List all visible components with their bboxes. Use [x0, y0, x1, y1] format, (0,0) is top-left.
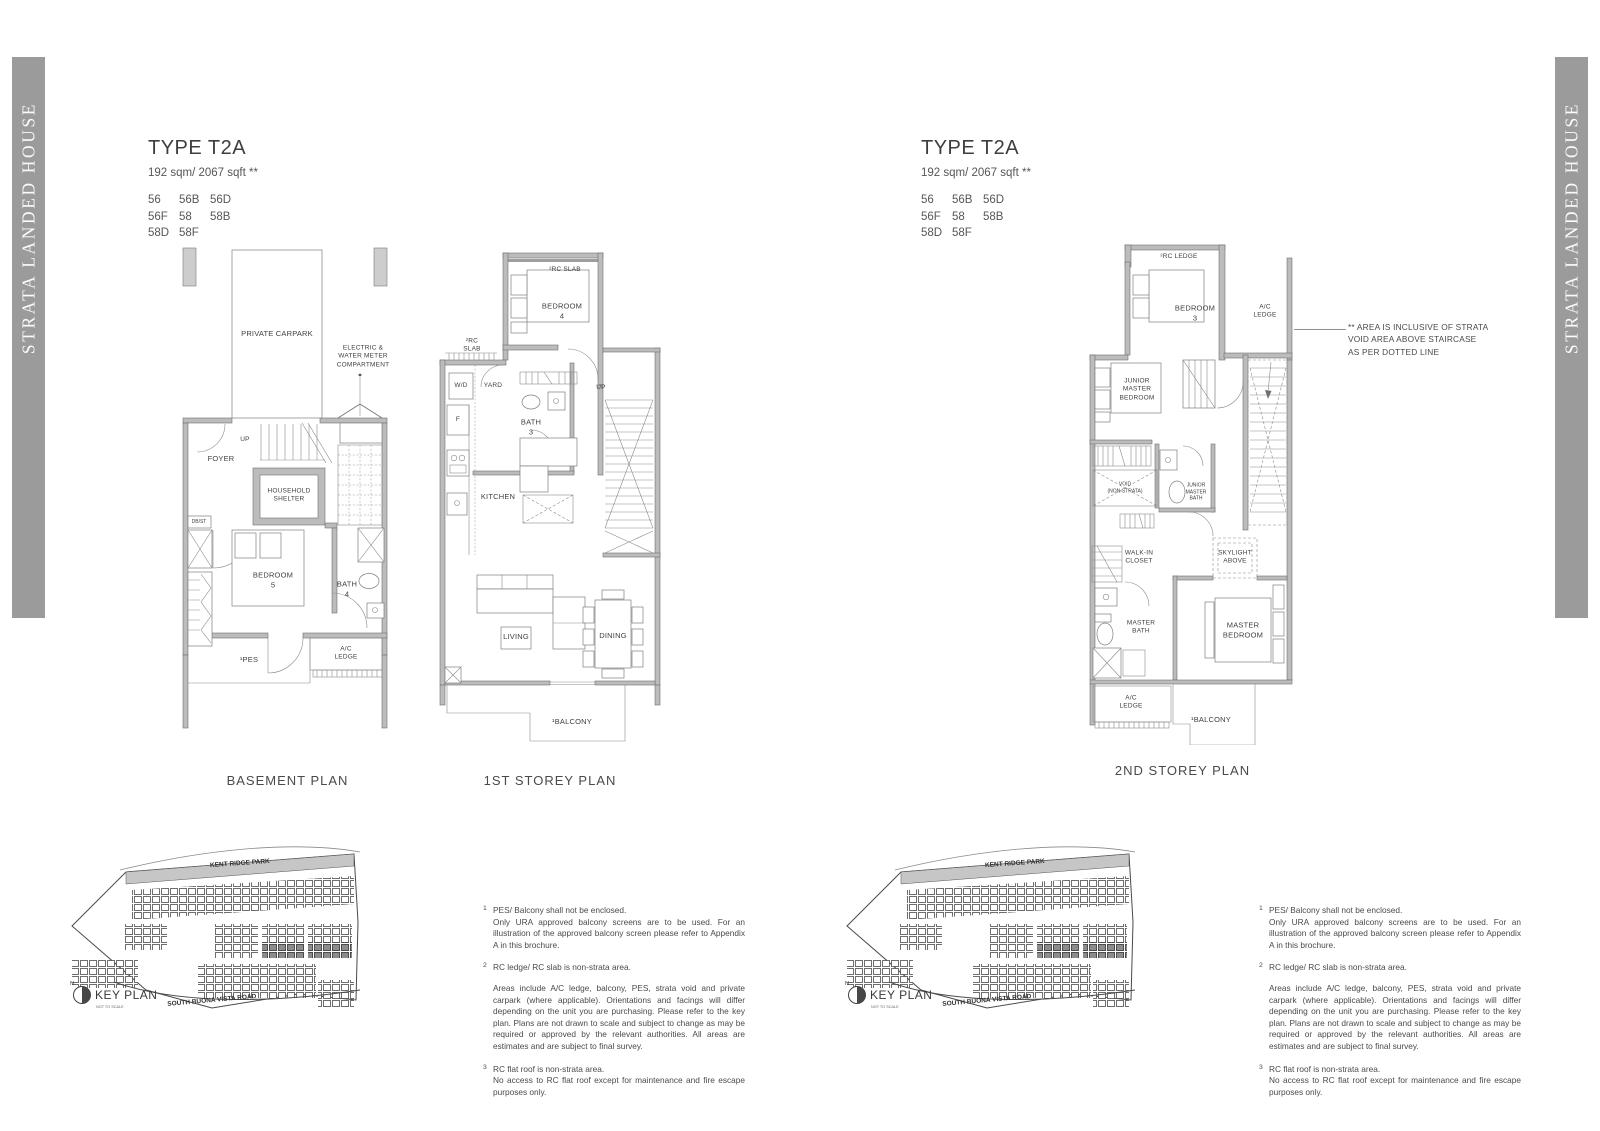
key-plan-title: KEY PLAN — [95, 988, 157, 1002]
unit-number: 56F — [148, 209, 179, 226]
highlighted-blocks — [1037, 942, 1079, 958]
unit-number: 56F — [921, 209, 952, 226]
first-storey-plan-caption: 1ST STOREY PLAN — [435, 773, 665, 788]
island-counter — [520, 438, 577, 466]
unit-number: 56D — [210, 192, 241, 209]
toilet — [359, 574, 379, 589]
room-label-household-shelter: HOUSEHOLD SHELTER — [268, 488, 311, 505]
footnote-3: 3 RC flat roof is non-strata area. No ac… — [1258, 1064, 1521, 1099]
footnote-number: 3 — [483, 1063, 487, 1073]
key-plan-title: KEY PLAN — [870, 988, 932, 1002]
label-skylight-above: SKYLIGHT ABOVE — [1218, 550, 1252, 567]
footnote-body: Only URA approved balcony screens are to… — [1269, 917, 1521, 952]
footnote-body: Only URA approved balcony screens are to… — [493, 917, 745, 952]
label-dbst: DB/ST — [192, 519, 207, 526]
unit-number: 58 — [179, 209, 210, 226]
unit-type-title: TYPE T2A — [921, 137, 1221, 160]
kitchen-sink — [447, 493, 467, 515]
unit-type-title: TYPE T2A — [148, 137, 448, 160]
left-sidebar-band: STRATA LANDED HOUSE — [12, 57, 45, 618]
label-fridge: F — [456, 416, 460, 424]
footnote-title: RC ledge/ RC slab is non-strata area. — [1269, 962, 1521, 974]
key-plan-map: KENT RIDGE PARK SOUTH BUONA VISTA ROAD N… — [62, 832, 462, 1017]
label-rc-slab-left: ²RC SLAB — [463, 338, 480, 355]
basement-floorplan: PRIVATE CARPARK ELECTRIC & WATER METER C… — [175, 240, 400, 740]
footnote-1: 1 PES/ Balcony shall not be enclosed. On… — [482, 905, 745, 951]
footnote-number: 2 — [1259, 961, 1263, 971]
key-plan-right: KENT RIDGE PARK SOUTH BUONA VISTA ROAD N… — [837, 832, 1237, 1017]
unit-number: 58B — [210, 209, 241, 226]
footnote-2: 2 RC ledge/ RC slab is non-strata area. … — [482, 962, 745, 1052]
meter-compartment — [338, 374, 382, 443]
sink — [1160, 450, 1177, 470]
hatched-void-grid — [338, 445, 382, 525]
unit-number: 58 — [952, 209, 983, 226]
room-label-ac-ledge: A/C LEDGE — [334, 646, 357, 663]
key-plan-scale-note: NOT TO SCALE — [96, 1005, 124, 1009]
first-storey-floorplan: ²RC SLAB BEDROOM 4 ²RC SLAB W/D YARD F B… — [435, 245, 665, 745]
second-storey-plan-caption: 2ND STOREY PLAN — [1065, 763, 1300, 778]
unit-number: 58B — [983, 209, 1014, 226]
footnote-number: 2 — [483, 961, 487, 971]
unit-area-label: 192 sqm/ 2067 sqft ** — [921, 167, 1221, 179]
room-label-master-bath: MASTER BATH — [1127, 620, 1155, 637]
footnote-title: PES/ Balcony shall not be enclosed. — [1269, 905, 1521, 917]
unit-number: 56D — [983, 192, 1014, 209]
footnote-title: RC flat roof is non-strata area. — [1269, 1064, 1521, 1076]
label-up: UP — [240, 436, 249, 444]
brochure-page: { "sidebar_title": "STRATA LANDED HOUSE"… — [0, 0, 1600, 1131]
room-label-junior-master-bath: JUNIOR MASTER BATH — [1186, 482, 1207, 502]
footnote-1: 1 PES/ Balcony shall not be enclosed. On… — [1258, 905, 1521, 951]
label-rc-slab-top: ²RC SLAB — [549, 266, 581, 274]
right-page-header: TYPE T2A 192 sqm/ 2067 sqft ** 56 56B 56… — [921, 137, 1221, 242]
toilet — [1097, 623, 1113, 645]
footnotes-left: 1 PES/ Balcony shall not be enclosed. On… — [482, 905, 745, 1110]
sink — [1095, 588, 1117, 606]
unit-number: 56B — [952, 192, 983, 209]
label-electric-water-meter: ELECTRIC & WATER METER COMPARTMENT — [337, 344, 390, 369]
room-label-bath3: BATH 3 — [521, 417, 541, 437]
right-sidebar-title: STRATA LANDED HOUSE — [1561, 102, 1582, 354]
toilet — [1169, 481, 1185, 503]
unit-number: 56 — [921, 192, 952, 209]
stairs-void — [1248, 360, 1287, 525]
unit-number: 56B — [179, 192, 210, 209]
junior-master-furniture — [1095, 360, 1243, 422]
room-label-bedroom3: BEDROOM 3 — [1175, 303, 1215, 323]
room-label-walk-in-closet: WALK-IN CLOSET — [1125, 550, 1153, 567]
left-sidebar-title: STRATA LANDED HOUSE — [18, 102, 39, 354]
closet-hatch — [1092, 514, 1154, 582]
key-plan-left: KENT RIDGE PARK SOUTH BUONA VISTA ROAD N… — [62, 832, 462, 1017]
footnote-title: RC ledge/ RC slab is non-strata area. — [493, 962, 745, 974]
key-plan-map: KENT RIDGE PARK SOUTH BUONA VISTA ROAD N… — [837, 832, 1237, 1017]
unit-number-list: 56 56B 56D 56F 58 58B 58D 58F — [921, 192, 1021, 242]
footnote-body: Areas include A/C ledge, balcony, PES, s… — [493, 983, 745, 1053]
right-sidebar-band: STRATA LANDED HOUSE — [1555, 57, 1588, 618]
strata-void-annotation: ** AREA IS INCLUSIVE OF STRATA VOID AREA… — [1348, 321, 1488, 358]
room-label-dining: DINING — [599, 631, 626, 641]
footnote-body: Areas include A/C ledge, balcony, PES, s… — [1269, 983, 1521, 1053]
toilet — [522, 395, 540, 409]
stairs — [598, 385, 653, 553]
left-page-header: TYPE T2A 192 sqm/ 2067 sqft ** 56 56B 56… — [148, 137, 448, 242]
stairs — [260, 423, 332, 463]
unit-number: 56 — [148, 192, 179, 209]
room-label-balcony: ¹BALCONY — [552, 717, 592, 727]
label-washer-dryer: W/D — [454, 382, 467, 390]
unit-area-label: 192 sqm/ 2067 sqft ** — [148, 167, 448, 179]
north-label: N — [845, 981, 849, 987]
footnote-number: 3 — [1259, 1063, 1263, 1073]
footnote-body: No access to RC flat roof except for mai… — [493, 1075, 745, 1098]
living-dining-furniture — [477, 575, 643, 678]
unit-number: 58F — [952, 225, 983, 242]
room-label-foyer: FOYER — [208, 454, 235, 464]
sink — [548, 392, 565, 410]
room-label-balcony: ¹BALCONY — [1191, 715, 1231, 725]
label-void-non-strata: VOID (NON-STRATA) — [1107, 482, 1142, 495]
highlighted-blocks — [1083, 942, 1127, 958]
footnote-title: PES/ Balcony shall not be enclosed. — [493, 905, 745, 917]
basement-plan-caption: BASEMENT PLAN — [175, 773, 400, 788]
room-label-living: LIVING — [503, 632, 529, 642]
footnote-2: 2 RC ledge/ RC slab is non-strata area. … — [1258, 962, 1521, 1052]
label-up: UP — [596, 384, 605, 392]
balcony-outline — [445, 667, 625, 741]
highlighted-blocks — [308, 942, 352, 958]
room-label-ac-ledge-top: A/C LEDGE — [1253, 304, 1276, 321]
label-rc-ledge: ²RC LEDGE — [1160, 253, 1197, 261]
unit-number: 58D — [921, 225, 952, 242]
room-label-ac-ledge-bottom: A/C LEDGE — [1119, 695, 1142, 712]
footnote-3: 3 RC flat roof is non-strata area. No ac… — [482, 1064, 745, 1099]
footnote-title: RC flat roof is non-strata area. — [493, 1064, 745, 1076]
footnotes-right: 1 PES/ Balcony shall not be enclosed. On… — [1258, 905, 1521, 1110]
key-plan-scale-note: NOT TO SCALE — [871, 1005, 899, 1009]
highlighted-blocks — [262, 942, 304, 958]
footnote-number: 1 — [1259, 904, 1263, 914]
room-label-pes: ¹PES — [240, 655, 258, 665]
sink — [367, 603, 384, 618]
room-label-bedroom5: BEDROOM 5 — [253, 570, 293, 590]
footnote-body: No access to RC flat roof except for mai… — [1269, 1075, 1521, 1098]
room-label-master-bedroom: MASTER BEDROOM — [1223, 620, 1263, 640]
room-label-private-carpark: PRIVATE CARPARK — [241, 329, 313, 339]
room-label-bedroom4: BEDROOM 4 — [542, 301, 582, 321]
room-label-yard: YARD — [484, 382, 502, 390]
north-label: N — [70, 981, 74, 987]
annotation-leader-line — [1294, 329, 1346, 330]
room-label-junior-master-bedroom: JUNIOR MASTER BEDROOM — [1120, 377, 1155, 402]
room-label-kitchen: KITCHEN — [481, 492, 515, 502]
shelf-strip — [1093, 446, 1151, 466]
unit-number-list: 56 56B 56D 56F 58 58B 58D 58F — [148, 192, 248, 242]
footnote-number: 1 — [483, 904, 487, 914]
second-storey-floorplan: ²RC LEDGE BEDROOM 3 A/C LEDGE JUNIOR MAS… — [1065, 240, 1300, 745]
room-label-bath4: BATH 4 — [337, 579, 357, 599]
